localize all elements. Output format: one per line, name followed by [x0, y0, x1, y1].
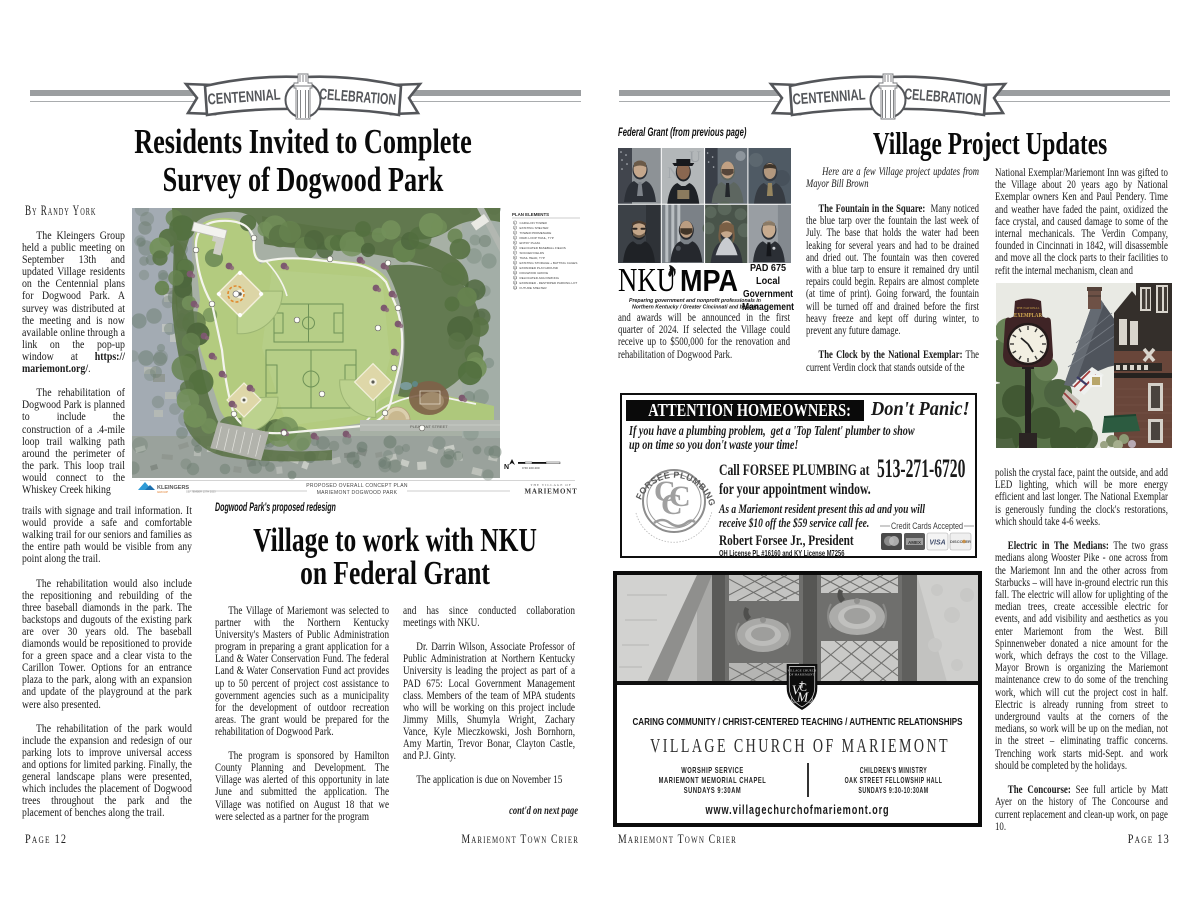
svg-text:ENTRY PLAZA: ENTRY PLAZA: [520, 241, 542, 245]
svg-text:GROUP: GROUP: [157, 490, 168, 494]
svg-text:Credit Cards Accepted: Credit Cards Accepted: [891, 521, 963, 532]
svg-text:4: 4: [514, 236, 516, 240]
svg-text:EXEMPLAR: EXEMPLAR: [1014, 312, 1042, 319]
svg-text:13: 13: [514, 281, 517, 285]
svg-text:14: 14: [514, 286, 517, 290]
svg-text:DISCOVER: DISCOVER: [950, 539, 971, 544]
svg-text:7: 7: [514, 251, 516, 255]
svg-text:NKU: NKU: [618, 262, 676, 299]
svg-text:FUTURE SHELTER: FUTURE SHELTER: [520, 286, 548, 290]
svg-text:1: 1: [514, 221, 516, 225]
svg-text:TOWER PROMENADE: TOWER PROMENADE: [520, 231, 552, 235]
svg-text:THE VILLAGE OF: THE VILLAGE OF: [530, 483, 571, 487]
svg-text:EXISTING SHELTER: EXISTING SHELTER: [520, 226, 550, 230]
svg-text:PAD 675: PAD 675: [750, 263, 786, 274]
svg-text:PROPOSED OVERALL CONCEPT PLAN: PROPOSED OVERALL CONCEPT PLAN: [306, 483, 408, 489]
svg-text:EXISTING STORAGE + BATTING CAG: EXISTING STORAGE + BATTING CAGES: [520, 261, 578, 265]
svg-text:OF MARIEMONT: OF MARIEMONT: [789, 673, 814, 677]
svg-text:C: C: [669, 480, 691, 513]
svg-text:SEPTEMBER 13TH 2023: SEPTEMBER 13TH 2023: [186, 490, 216, 494]
svg-text:THE NATIONAL: THE NATIONAL: [1016, 306, 1039, 310]
svg-text:Government: Government: [743, 289, 794, 300]
svg-text:MARIEMONT: MARIEMONT: [524, 488, 577, 496]
svg-text:DOGWOOD GROVE: DOGWOOD GROVE: [520, 271, 549, 275]
svg-text:N: N: [504, 464, 509, 471]
svg-text:EXPANDED PLAYGROUND: EXPANDED PLAYGROUND: [520, 266, 559, 270]
svg-text:M: M: [796, 689, 809, 704]
svg-text:RELOCATED ADA PARKING: RELOCATED ADA PARKING: [520, 276, 560, 280]
svg-text:5: 5: [514, 241, 516, 245]
svg-text:RELOCATED BASEBALL FIELDS: RELOCATED BASEBALL FIELDS: [520, 246, 566, 250]
svg-text:9: 9: [514, 261, 516, 265]
svg-text:0 50 100 200: 0 50 100 200: [522, 466, 540, 470]
svg-text:EXPANDED - RESTRIPED PARKING L: EXPANDED - RESTRIPED PARKING LOT: [520, 281, 578, 285]
svg-text:SOCCER FIELDS: SOCCER FIELDS: [520, 251, 545, 255]
svg-text:AMEX: AMEX: [908, 540, 921, 545]
svg-text:PARK LOOP TRAIL, TYP: PARK LOOP TRAIL, TYP: [520, 236, 554, 240]
svg-text:8: 8: [514, 256, 516, 260]
svg-text:Local: Local: [756, 276, 780, 287]
svg-text:2: 2: [514, 226, 516, 230]
svg-text:MARIEMONT DOGWOOD PARK: MARIEMONT DOGWOOD PARK: [317, 490, 398, 495]
svg-text:VISA: VISA: [929, 540, 945, 547]
svg-text:PLEASANT STREET: PLEASANT STREET: [410, 424, 448, 429]
svg-text:CARILLON TOWER: CARILLON TOWER: [520, 221, 548, 225]
svg-text:PLAN ELEMENTS: PLAN ELEMENTS: [512, 212, 549, 217]
svg-text:3: 3: [514, 231, 516, 235]
svg-text:10: 10: [514, 266, 517, 270]
svg-text:TRAIL HEAD, TYP: TRAIL HEAD, TYP: [520, 256, 545, 260]
svg-text:MPA: MPA: [680, 263, 738, 298]
svg-text:6: 6: [514, 246, 516, 250]
svg-text:12: 12: [514, 276, 517, 280]
